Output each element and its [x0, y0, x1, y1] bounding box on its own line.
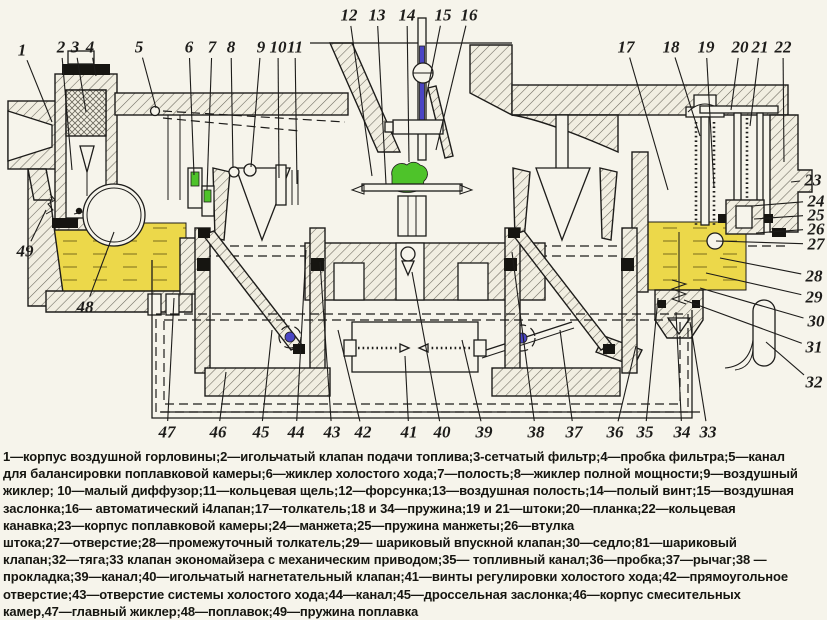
callout-number-21: 21 — [751, 38, 769, 57]
legend-line: канавка;23—корпус поплавковой камеры;24—… — [3, 517, 824, 534]
legend-line: камер,47—главный жиклер;48—поплавок;49—п… — [3, 603, 824, 620]
callout-number-35: 35 — [636, 423, 655, 442]
legend-line: для балансировки поплавковой камеры;6—жи… — [3, 465, 824, 482]
callout-leader-11 — [295, 58, 297, 184]
callout-leader-35 — [646, 298, 658, 421]
legend-line: заслонка;16— автоматический i4лапан;17—т… — [3, 500, 824, 517]
callout-leader-30 — [700, 288, 803, 318]
callout-number-14: 14 — [399, 6, 416, 25]
callout-leader-7 — [207, 58, 212, 190]
float — [83, 184, 145, 246]
legend-line: 1—корпус воздушной горловины;2—игольчаты… — [3, 448, 824, 465]
scanned-manual-page: { "figure": { "type": "technical-cross-s… — [0, 0, 827, 615]
callout-number-9: 9 — [257, 38, 266, 57]
callout-number-19: 19 — [698, 38, 716, 57]
callout-number-41: 41 — [400, 423, 418, 442]
callout-number-44: 44 — [287, 423, 305, 442]
callout-leader-10 — [278, 58, 279, 178]
callout-number-15: 15 — [435, 6, 453, 25]
callout-number-10: 10 — [270, 38, 288, 57]
top-cover-left — [115, 43, 512, 200]
callout-number-43: 43 — [323, 423, 342, 442]
callout-number-38: 38 — [527, 423, 546, 442]
callout-number-45: 45 — [252, 423, 271, 442]
callout-number-47: 47 — [158, 423, 178, 442]
callout-number-42: 42 — [354, 423, 373, 442]
callout-number-40: 40 — [433, 423, 452, 442]
callout-number-30: 30 — [807, 312, 826, 331]
callout-leader-47 — [168, 298, 174, 421]
link-rod-32 — [725, 300, 775, 370]
callout-number-16: 16 — [461, 6, 479, 25]
callout-number-49: 49 — [16, 242, 35, 261]
callout-number-20: 20 — [731, 38, 750, 57]
callout-number-33: 33 — [699, 423, 718, 442]
callout-number-13: 13 — [369, 6, 387, 25]
callout-leader-16 — [436, 26, 466, 150]
legend-line: прокладка;39—канал;40—игольчатый нагнета… — [3, 568, 824, 585]
callout-number-1: 1 — [18, 41, 27, 60]
callout-number-46: 46 — [209, 423, 228, 442]
legend-line: клапан;32—тяга;33 клапан экономайзера с … — [3, 551, 824, 568]
callout-number-5: 5 — [135, 38, 144, 57]
callout-number-37: 37 — [565, 423, 585, 442]
callout-number-8: 8 — [227, 38, 236, 57]
callout-number-36: 36 — [606, 423, 625, 442]
callout-number-48: 48 — [76, 298, 95, 317]
callout-leader-6 — [190, 58, 194, 175]
callout-number-12: 12 — [341, 6, 359, 25]
callout-number-7: 7 — [208, 38, 218, 57]
callout-number-32: 32 — [805, 373, 824, 392]
callout-number-28: 28 — [805, 267, 824, 286]
callout-number-31: 31 — [805, 338, 823, 357]
callout-leader-14 — [407, 26, 409, 162]
callout-number-2: 2 — [56, 38, 66, 57]
callout-number-4: 4 — [85, 38, 95, 57]
callout-number-22: 22 — [774, 38, 793, 57]
callout-number-3: 3 — [70, 38, 80, 57]
callout-number-34: 34 — [673, 423, 691, 442]
carburetor-diagram: 1234567891011121314151617181920212223242… — [0, 0, 827, 447]
callout-number-18: 18 — [663, 38, 681, 57]
air-horn — [8, 101, 62, 200]
legend-line: отверстие;43—отверстие системы холостого… — [3, 586, 824, 603]
callout-number-23: 23 — [804, 171, 823, 190]
legend-line: штока;27—отверстие;28—промежуточный толк… — [3, 534, 824, 551]
callout-number-27: 27 — [807, 235, 827, 254]
callout-number-11: 11 — [287, 38, 303, 57]
callout-number-6: 6 — [185, 38, 194, 57]
figure-legend: 1—корпус воздушной горловины;2—игольчаты… — [3, 448, 824, 620]
callout-number-17: 17 — [618, 38, 637, 57]
callout-number-39: 39 — [475, 423, 494, 442]
callout-number-29: 29 — [805, 288, 824, 307]
legend-line: жиклер; 10—малый диффузор;11—кольцевая щ… — [3, 482, 824, 499]
